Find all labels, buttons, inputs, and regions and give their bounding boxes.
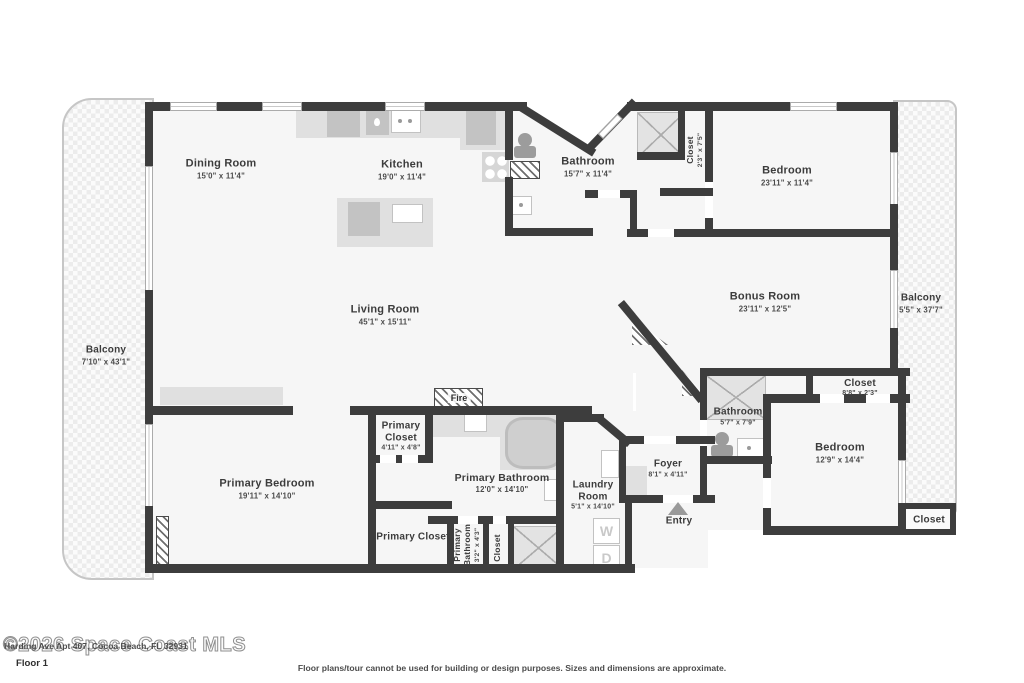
room-label-closet-bonus: Closet8'8" x 2'3": [842, 378, 878, 397]
br-sink-knob: [747, 446, 751, 450]
door-opening: [493, 516, 506, 524]
wall: [898, 368, 906, 460]
wall: [763, 403, 771, 534]
room-label-primary-closet-top: Primary Closet4'11" x 4'8": [373, 421, 429, 452]
window: [145, 424, 153, 508]
window: [385, 102, 425, 111]
floor-number-label: Floor 1: [16, 658, 48, 669]
wall: [145, 290, 153, 424]
wall: [145, 102, 153, 166]
laundry-sink-icon: [601, 450, 619, 478]
wall: [625, 500, 632, 572]
range-icon: [327, 110, 360, 137]
room-label-balcony-left: Balcony7'10" x 43'1": [82, 344, 130, 366]
wall: [505, 102, 513, 160]
floor-plan-page: W D: [0, 0, 1024, 683]
wall: [556, 406, 564, 572]
washer-icon: W: [593, 518, 620, 544]
room-label-primary-bathroom: Primary Bathroom12'0" x 14'10": [455, 472, 550, 494]
room-label-balcony-right: Balcony5'5" x 37'7": [899, 292, 943, 314]
window: [790, 102, 837, 111]
window: [890, 270, 898, 330]
dishwasher-knob: [519, 203, 523, 207]
room-label-primary-bedroom: Primary Bedroom19'11" x 14'10": [219, 478, 314, 501]
left-balcony-area: [62, 98, 154, 580]
door-opening: [380, 455, 396, 463]
island-appliance: [392, 204, 423, 223]
room-label-laundry: Laundry Room5'1" x 14'10": [564, 480, 622, 511]
fireplace-label: Fire: [448, 393, 471, 403]
fridge-icon: [466, 111, 496, 145]
room-label-bonus: Bonus Room23'11" x 12'5": [730, 291, 800, 314]
wall: [660, 188, 713, 196]
wall: [890, 102, 898, 152]
room-label-entry: Entry: [666, 515, 693, 527]
window: [898, 460, 906, 508]
wall: [678, 110, 685, 158]
wall: [637, 152, 685, 160]
door-opening: [598, 190, 620, 198]
window: [145, 166, 153, 292]
disclaimer-text: Floor plans/tour cannot be used for buil…: [0, 663, 1024, 673]
wall: [898, 503, 956, 509]
room-label-primary-bathroom-small: Primary Bathroom3'2" x 4'3": [453, 519, 481, 571]
door-opening: [763, 478, 771, 508]
door-opening: [648, 229, 674, 237]
island-sink: [348, 202, 380, 236]
foyer-cabinet: [626, 466, 647, 496]
wall: [145, 406, 293, 415]
room-label-bedroom-right: Bedroom12'9" x 14'4": [815, 442, 865, 465]
door-opening: [644, 436, 676, 444]
wall: [700, 368, 910, 376]
bathtub-icon: [505, 417, 563, 469]
wall: [505, 177, 513, 235]
room-label-dining: Dining Room15'0" x 11'4": [186, 158, 257, 181]
wall: [763, 526, 906, 535]
water-drop-icon: [374, 118, 380, 126]
room-label-closet-small: Closet: [493, 534, 503, 561]
toilet-icon: [514, 133, 536, 161]
vanity-icon: [510, 161, 540, 179]
room-label-primary-closet-bottom: Primary Closet: [376, 531, 449, 543]
door-opening: [820, 394, 844, 403]
cooktop-icon: [391, 110, 421, 133]
sofa-icon: [160, 387, 283, 405]
door-opening: [402, 455, 418, 463]
wall: [630, 190, 637, 237]
wall: [368, 455, 433, 463]
room-label-closet-br: Closet: [913, 514, 945, 526]
wall: [627, 102, 712, 111]
wall: [898, 529, 956, 535]
room-label-closet-top: Closet2'3" x 7'5": [686, 133, 704, 168]
cooktop-knob: [408, 119, 412, 123]
room-label-kitchen: Kitchen19'0" x 11'4": [378, 159, 426, 182]
wall: [700, 456, 772, 464]
entry-arrow-icon: [668, 502, 688, 515]
room-label-bedroom-top: Bedroom23'11" x 11'4": [761, 165, 813, 188]
window: [262, 102, 302, 111]
wall: [368, 501, 452, 509]
wall: [145, 564, 635, 573]
room-label-bathroom-top: Bathroom15'7" x 11'4": [561, 156, 615, 179]
window: [890, 152, 898, 206]
wall: [890, 236, 898, 270]
property-address: Harding Ave Apt 407, Cocoa Beach, FL 329…: [4, 641, 188, 651]
room-label-bathroom-right: Bathroom5'7" x 7'9": [714, 406, 763, 426]
cooktop-knob: [398, 119, 402, 123]
wall: [145, 506, 153, 573]
window: [170, 102, 217, 111]
room-label-foyer: Foyer8'1" x 4'11": [648, 458, 687, 478]
room-label-living: Living Room45'1" x 15'11": [351, 304, 420, 327]
wall: [505, 228, 593, 236]
